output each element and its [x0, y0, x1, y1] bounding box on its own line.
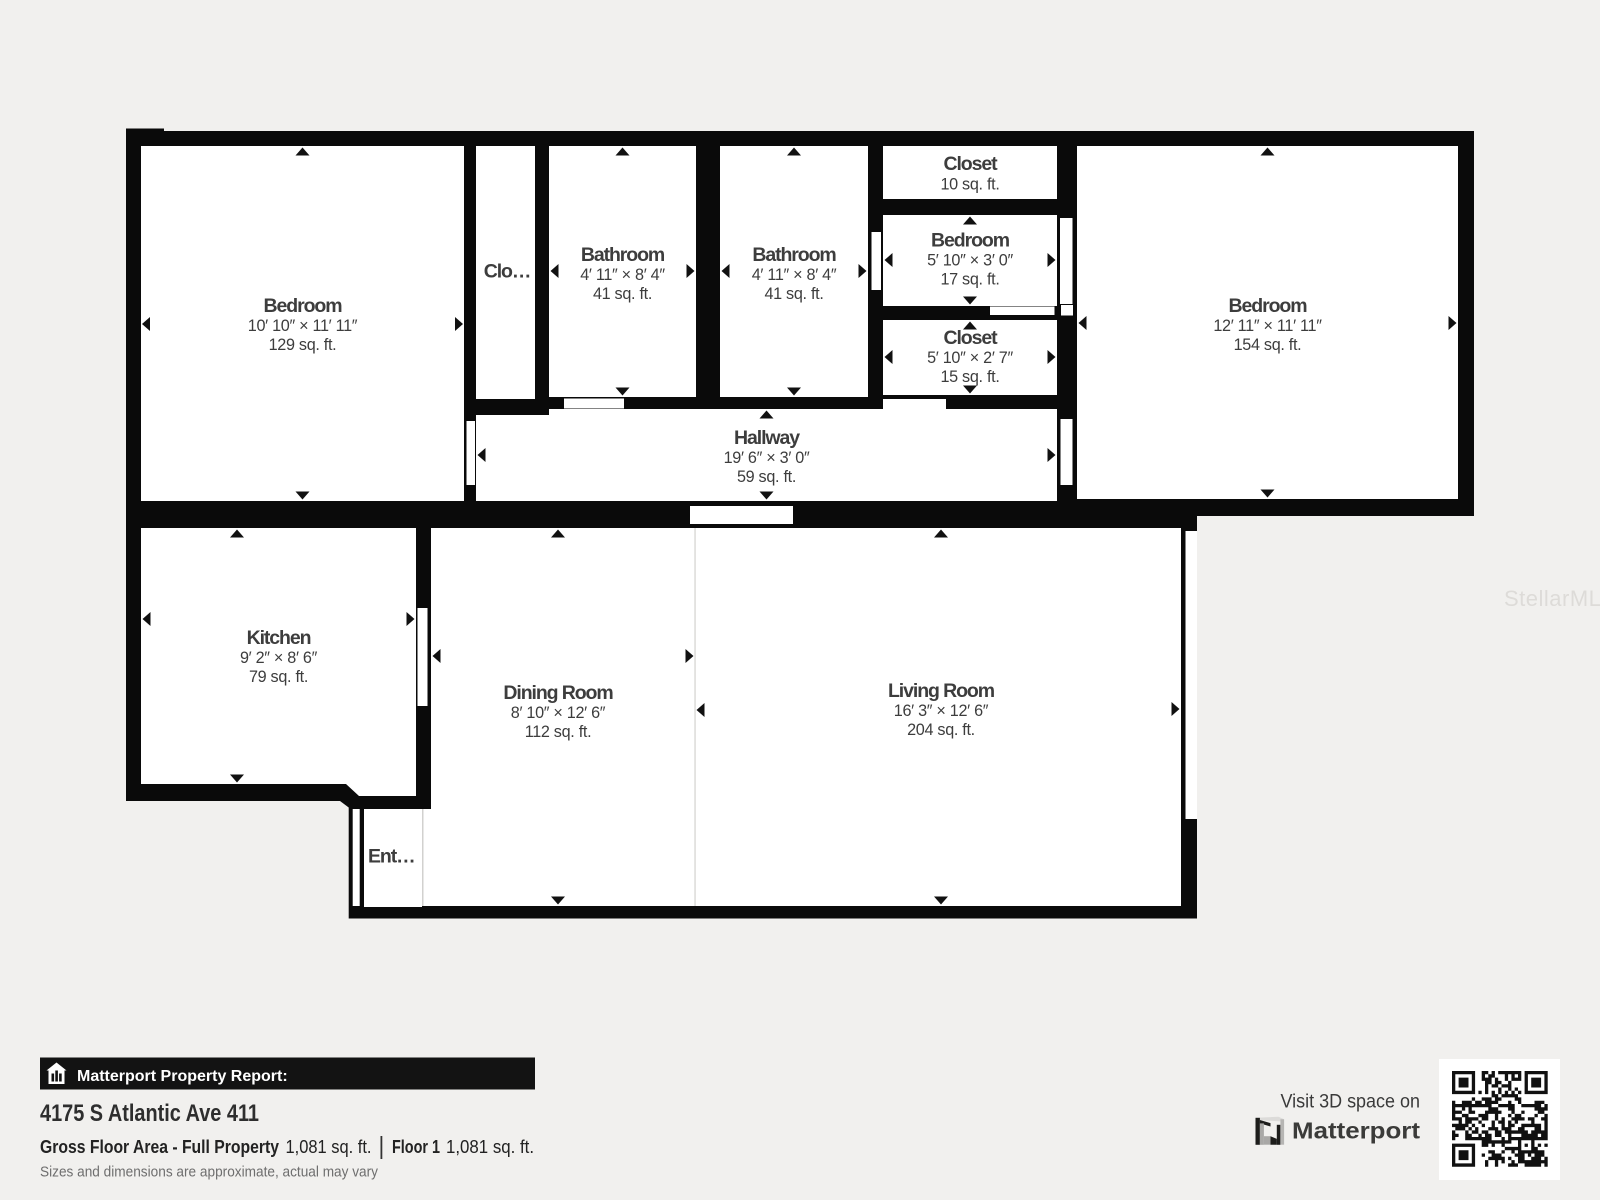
svg-text:16′ 3″ × 12′ 6″: 16′ 3″ × 12′ 6″ — [894, 702, 989, 720]
svg-text:Clo…: Clo… — [484, 261, 531, 283]
svg-text:10 sq. ft.: 10 sq. ft. — [940, 176, 999, 194]
svg-text:4′ 11″ × 8′ 4″: 4′ 11″ × 8′ 4″ — [580, 266, 665, 284]
svg-text:Bathroom: Bathroom — [581, 244, 665, 266]
svg-text:112 sq. ft.: 112 sq. ft. — [525, 723, 592, 741]
svg-text:Ent…: Ent… — [368, 846, 415, 868]
svg-text:Matterport: Matterport — [1292, 1118, 1420, 1144]
svg-text:1,081 sq. ft.: 1,081 sq. ft. — [286, 1137, 372, 1157]
svg-text:154 sq. ft.: 154 sq. ft. — [1234, 336, 1302, 354]
svg-text:Bedroom: Bedroom — [931, 230, 1010, 252]
svg-text:12′ 11″ × 11′ 11″: 12′ 11″ × 11′ 11″ — [1213, 317, 1322, 335]
svg-text:204 sq. ft.: 204 sq. ft. — [907, 721, 975, 739]
svg-text:129 sq. ft.: 129 sq. ft. — [269, 336, 337, 354]
svg-text:Bathroom: Bathroom — [752, 244, 836, 266]
svg-text:15 sq. ft.: 15 sq. ft. — [940, 368, 999, 386]
svg-text:5′ 10″ × 2′ 7″: 5′ 10″ × 2′ 7″ — [927, 349, 1013, 367]
svg-text:8′ 10″ × 12′ 6″: 8′ 10″ × 12′ 6″ — [511, 704, 606, 722]
svg-text:Visit 3D space on: Visit 3D space on — [1281, 1091, 1421, 1113]
svg-text:Closet: Closet — [944, 153, 999, 175]
svg-text:79 sq. ft.: 79 sq. ft. — [249, 668, 308, 686]
svg-text:Matterport Property Report:: Matterport Property Report: — [77, 1068, 288, 1085]
svg-text:Living Room: Living Room — [888, 680, 995, 702]
svg-text:Gross Floor Area - Full Proper: Gross Floor Area - Full Property — [40, 1137, 279, 1157]
svg-text:StellarMLS: StellarMLS — [1504, 586, 1600, 611]
svg-text:59 sq. ft.: 59 sq. ft. — [737, 468, 796, 486]
svg-text:1,081 sq. ft.: 1,081 sq. ft. — [446, 1137, 534, 1157]
svg-text:Hallway: Hallway — [734, 427, 800, 449]
svg-text:10′ 10″ × 11′ 11″: 10′ 10″ × 11′ 11″ — [248, 317, 358, 335]
svg-text:Bedroom: Bedroom — [264, 295, 343, 317]
svg-text:Dining Room: Dining Room — [503, 682, 613, 704]
svg-text:Kitchen: Kitchen — [247, 627, 311, 649]
svg-text:4175 S Atlantic Ave 411: 4175 S Atlantic Ave 411 — [40, 1100, 259, 1127]
svg-text:41 sq. ft.: 41 sq. ft. — [764, 285, 823, 303]
svg-text:41 sq. ft.: 41 sq. ft. — [593, 285, 652, 303]
svg-text:Bedroom: Bedroom — [1229, 295, 1308, 317]
svg-text:17 sq. ft.: 17 sq. ft. — [940, 271, 999, 289]
svg-text:19′ 6″ × 3′ 0″: 19′ 6″ × 3′ 0″ — [724, 449, 810, 467]
svg-text:Floor 1: Floor 1 — [392, 1137, 440, 1157]
svg-text:4′ 11″ × 8′ 4″: 4′ 11″ × 8′ 4″ — [752, 266, 837, 284]
svg-text:Closet: Closet — [944, 327, 999, 349]
svg-text:Sizes and dimensions are appro: Sizes and dimensions are approximate, ac… — [40, 1165, 379, 1181]
svg-text:9′ 2″ × 8′ 6″: 9′ 2″ × 8′ 6″ — [240, 649, 318, 667]
svg-text:5′ 10″ × 3′ 0″: 5′ 10″ × 3′ 0″ — [927, 252, 1013, 270]
